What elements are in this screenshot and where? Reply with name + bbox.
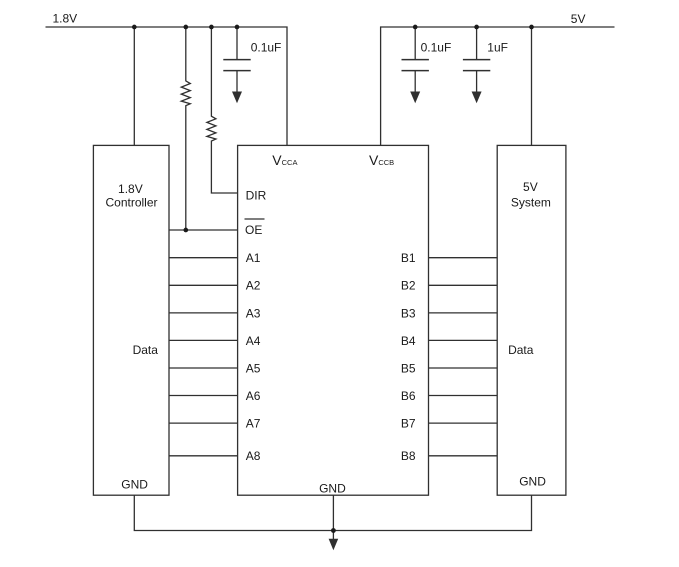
svg-text:System: System [511,196,551,210]
svg-text:0.1uF: 0.1uF [251,41,282,55]
svg-text:Data: Data [508,343,534,357]
svg-text:B8: B8 [401,449,416,463]
svg-text:A3: A3 [246,306,261,320]
svg-text:B1: B1 [401,251,416,265]
svg-text:A2: A2 [246,279,261,293]
svg-text:OE: OE [245,223,262,237]
svg-text:B5: B5 [401,361,416,375]
svg-text:A5: A5 [246,361,261,375]
svg-text:DIR: DIR [246,189,267,203]
svg-text:A6: A6 [246,389,261,403]
svg-text:B7: B7 [401,417,416,431]
svg-text:A4: A4 [246,334,261,348]
svg-text:1.8V: 1.8V [53,12,78,26]
svg-text:GND: GND [519,474,546,488]
svg-text:A8: A8 [246,449,261,463]
svg-text:A1: A1 [246,251,261,265]
svg-text:Data: Data [133,343,159,357]
svg-text:GND: GND [319,481,346,495]
svg-text:B4: B4 [401,334,416,348]
svg-text:0.1uF: 0.1uF [421,41,452,55]
svg-text:B2: B2 [401,279,416,293]
svg-text:1uF: 1uF [487,41,508,55]
svg-text:B3: B3 [401,306,416,320]
svg-text:GND: GND [121,478,148,492]
svg-text:B6: B6 [401,389,416,403]
svg-text:VCCB: VCCB [369,152,394,168]
svg-text:5V: 5V [571,12,586,26]
svg-text:5V: 5V [523,180,538,194]
svg-text:VCCA: VCCA [272,152,297,168]
svg-text:1.8V: 1.8V [118,182,143,196]
svg-text:A7: A7 [246,417,261,431]
svg-text:Controller: Controller [105,196,157,210]
